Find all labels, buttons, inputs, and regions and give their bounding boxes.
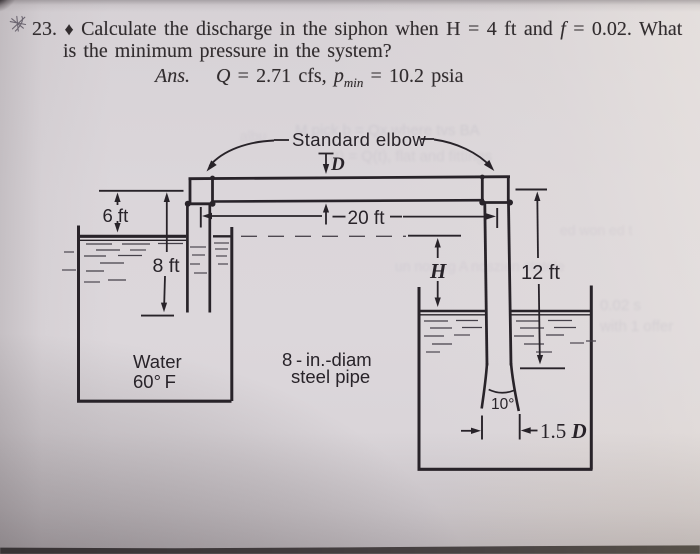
svg-text:Water: Water — [133, 351, 182, 372]
svg-text:H: H — [429, 259, 447, 283]
svg-text:60° F: 60° F — [133, 371, 176, 392]
svg-text:20 ft: 20 ft — [348, 208, 386, 229]
svg-text:10°: 10° — [491, 396, 514, 413]
svg-text:D: D — [330, 154, 345, 175]
svg-text:6 ft: 6 ft — [103, 205, 129, 226]
svg-text:12 ft: 12 ft — [521, 262, 560, 284]
svg-text:1.5 D: 1.5 D — [540, 419, 587, 443]
svg-text:Standard elbow: Standard elbow — [292, 129, 426, 150]
svg-text:8 ft: 8 ft — [153, 255, 181, 277]
svg-text:steel pipe: steel pipe — [291, 366, 370, 387]
